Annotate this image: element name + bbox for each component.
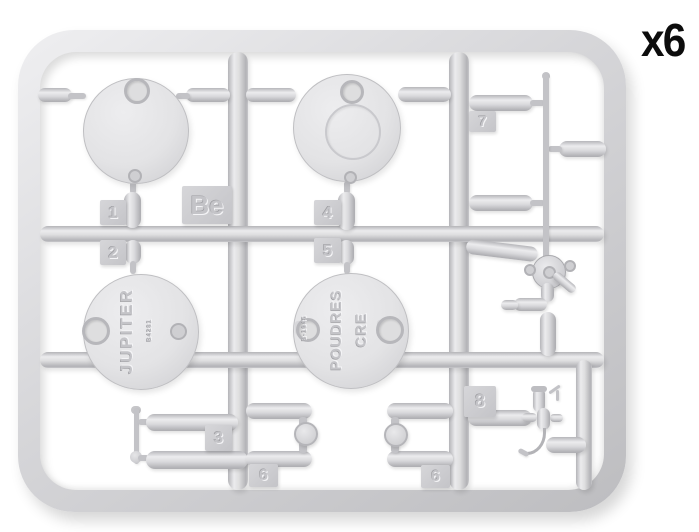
lid-top-left-dot <box>128 169 142 183</box>
part-number-tag-6-left: 6 <box>249 464 278 487</box>
part-number-tag-3: 3 <box>205 425 232 451</box>
gate-pill <box>469 195 533 211</box>
poudres-code-text: B-1945 <box>301 303 309 353</box>
gate-pill <box>186 88 230 102</box>
poudres-brand-text-line1: POUDRES <box>327 275 345 385</box>
lid-top-middle-center-ring <box>325 104 381 160</box>
lid-top-middle-boss <box>340 80 364 104</box>
part-8-tee-right <box>550 414 563 422</box>
part-8-body <box>537 408 550 430</box>
tag-label: 3 <box>214 428 223 448</box>
part-number-tag-1: 1 <box>100 200 126 225</box>
tag-label: 6 <box>431 468 440 486</box>
tag-label: 6 <box>259 467 268 485</box>
runner-vertical-bottom-right <box>576 360 592 490</box>
poudres-ring-right <box>376 316 404 344</box>
part-6-right-wheel <box>384 423 408 447</box>
sprue-diagram: x6 <box>0 0 699 532</box>
lid-top-middle-dot <box>344 171 357 184</box>
tag-label: 8 <box>475 391 485 412</box>
jupiter-ring-left <box>82 317 110 345</box>
part-6-left-wheel <box>294 422 318 446</box>
gate-pill <box>559 141 606 157</box>
part-8-tee-left <box>522 413 537 422</box>
valve-spout-tip <box>501 300 518 310</box>
part-8-hook-stem <box>556 390 559 401</box>
tag-label: 5 <box>323 241 332 261</box>
poudres-brand-text-line2: CRE <box>353 275 369 385</box>
valve-lug-right <box>564 260 576 272</box>
gate-pill <box>469 95 533 111</box>
tag-label: 2 <box>108 243 117 263</box>
jupiter-brand-text: JUPITER <box>117 271 137 391</box>
quantity-label: x6 <box>641 13 684 67</box>
valve-lug-left <box>524 264 536 276</box>
part-number-tag-5: 5 <box>314 238 341 263</box>
runner-vertical-right <box>449 52 469 490</box>
valve-spout-pipe <box>514 298 547 311</box>
sprue-letter-label: Be <box>190 190 223 221</box>
small-cylinder-part-1 <box>124 192 141 228</box>
gate-pill <box>540 312 556 356</box>
part-number-tag-2: 2 <box>100 240 126 265</box>
part-number-tag-6-right: 6 <box>421 465 450 488</box>
gate-pill <box>246 88 296 102</box>
standpipe-rod-part-7 <box>543 74 549 260</box>
part-number-tag-7: 7 <box>469 111 496 132</box>
part-8-top-cap <box>531 386 547 392</box>
part-number-tag-8: 8 <box>464 386 496 417</box>
jupiter-dot-right <box>170 323 187 340</box>
jupiter-code-text: B4281 <box>146 305 154 355</box>
sprue-letter-tag: Be <box>182 186 232 224</box>
cylinder-part-3-lower <box>146 451 248 469</box>
gate-pill <box>398 87 451 102</box>
gate-pill <box>38 88 72 102</box>
tag-label: 4 <box>323 203 332 223</box>
lid-top-left-ring <box>124 78 150 104</box>
gate-taper <box>548 146 562 152</box>
tag-label: 7 <box>478 113 486 130</box>
gate-pill <box>546 437 586 453</box>
part-number-tag-4: 4 <box>314 200 341 225</box>
tag-label: 1 <box>108 203 117 223</box>
gate-taper <box>68 93 86 99</box>
